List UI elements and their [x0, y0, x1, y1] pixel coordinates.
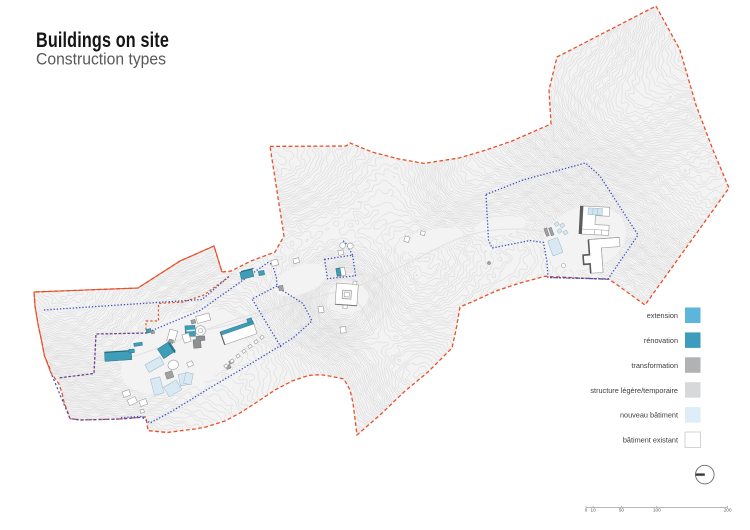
svg-text:transformation: transformation [631, 361, 678, 370]
svg-text:structure légère/temporaire: structure légère/temporaire [590, 386, 678, 395]
svg-text:200: 200 [724, 508, 732, 513]
svg-text:bâtiment existant: bâtiment existant [623, 436, 678, 445]
svg-text:100: 100 [653, 508, 661, 513]
svg-text:Construction types: Construction types [36, 50, 166, 69]
svg-text:10: 10 [591, 508, 597, 513]
svg-text:extension: extension [647, 311, 678, 320]
svg-text:0: 0 [585, 508, 588, 513]
svg-text:nouveau bâtiment: nouveau bâtiment [620, 411, 678, 420]
svg-text:rénovation: rénovation [644, 336, 678, 345]
svg-text:50: 50 [619, 508, 625, 513]
